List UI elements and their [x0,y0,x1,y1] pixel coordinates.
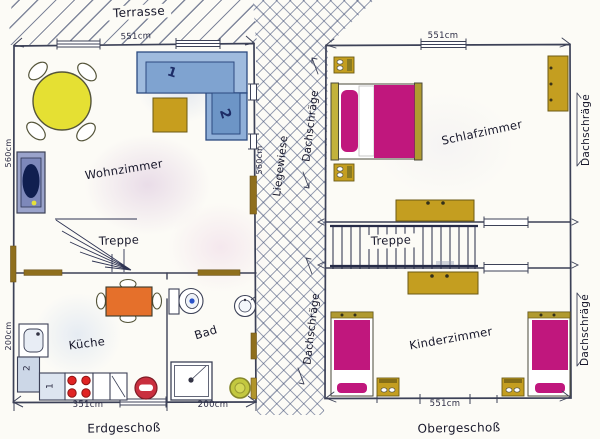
counter-number-1: 1 [47,383,56,389]
floorplan-page: Terrasse 551cm Wohnzimmer Treppe Küche B… [0,0,600,439]
floor-label-obergeschoss: Obergeschoß [417,421,500,434]
kitchen-table-group [97,280,162,323]
kids-bed-left [331,312,373,396]
area-label-dachschraege-right-bottom: Dachschräge [580,294,591,366]
bath-rug [230,378,250,398]
og-lintels [484,217,528,274]
eg-windows [57,38,259,408]
lawn-hatching [250,0,380,418]
toilet [169,289,203,315]
fireplace [17,152,45,213]
wardrobe-kids [408,272,478,294]
area-label-liegewiese: Liegewiese [272,135,290,197]
double-bed [331,83,422,160]
room-label-kueche: Küche [68,336,106,352]
watercolor-smudge [60,115,235,255]
room-label-treppe-og: Treppe [365,233,418,248]
floorplan-drawing [0,0,600,439]
washbasin [235,296,257,317]
dimension-eg-left-kitchen: 200cm [5,322,13,351]
stool [135,377,157,399]
kids-nightstand-right [502,378,524,396]
room-label-kinderzimmer: Kinderzimmer [409,326,494,352]
sofa-number-1: 1 [166,65,179,80]
watercolor-smudge [118,38,243,138]
dimension-eg-bottom-kitchen: 351cm [73,401,104,410]
dimension-eg-bottom-bath: 200cm [198,401,229,410]
kids-nightstand-left [377,378,399,396]
eg-dimension-ticks [13,36,256,411]
kitchen-counters [18,324,128,400]
sofa [137,52,247,140]
shower [171,362,212,400]
area-label-dachschraege-right-top: Dachschräge [581,94,592,166]
coffee-table [153,98,187,132]
dimension-eg-left-height: 560cm [5,139,13,168]
wardrobe-bedroom [396,200,474,221]
nightstand-bottom [334,164,354,181]
round-table [23,59,99,144]
floor-label-erdgeschoss: Erdgeschoß [87,421,160,434]
kids-bed-right [528,312,570,396]
room-label-treppe-eg: Treppe [99,235,140,248]
counter-number-2: 2 [24,365,33,371]
eg-beams [11,176,257,399]
dresser [548,56,568,111]
area-label-dachschraege-mid-bottom: Dachschräge [302,293,321,366]
watercolor-smudge [15,275,140,395]
room-label-schlafzimmer: Schlafzimmer [441,119,524,147]
dimension-eg-right-height: 560cm [256,146,264,175]
stair-dimension-smudge [436,261,454,265]
dimension-og-top: 551cm [428,32,459,41]
area-label-dachschraege-mid-top: Dachschräge [301,90,320,163]
area-label-terrasse: Terrasse [107,3,172,20]
stove [68,376,90,397]
nightstand-top [334,57,354,73]
og-windows [377,39,497,405]
dimension-eg-top: 551cm [121,32,152,42]
slope-dimension-arrows [298,38,581,402]
sofa-number-2: 2 [217,107,233,121]
eg-walls [14,44,257,403]
room-label-bad: Bad [193,324,218,342]
dimension-og-bottom: 551cm [428,400,463,409]
room-label-wohnzimmer: Wohnzimmer [84,158,164,182]
watercolor-smudge [148,185,293,310]
